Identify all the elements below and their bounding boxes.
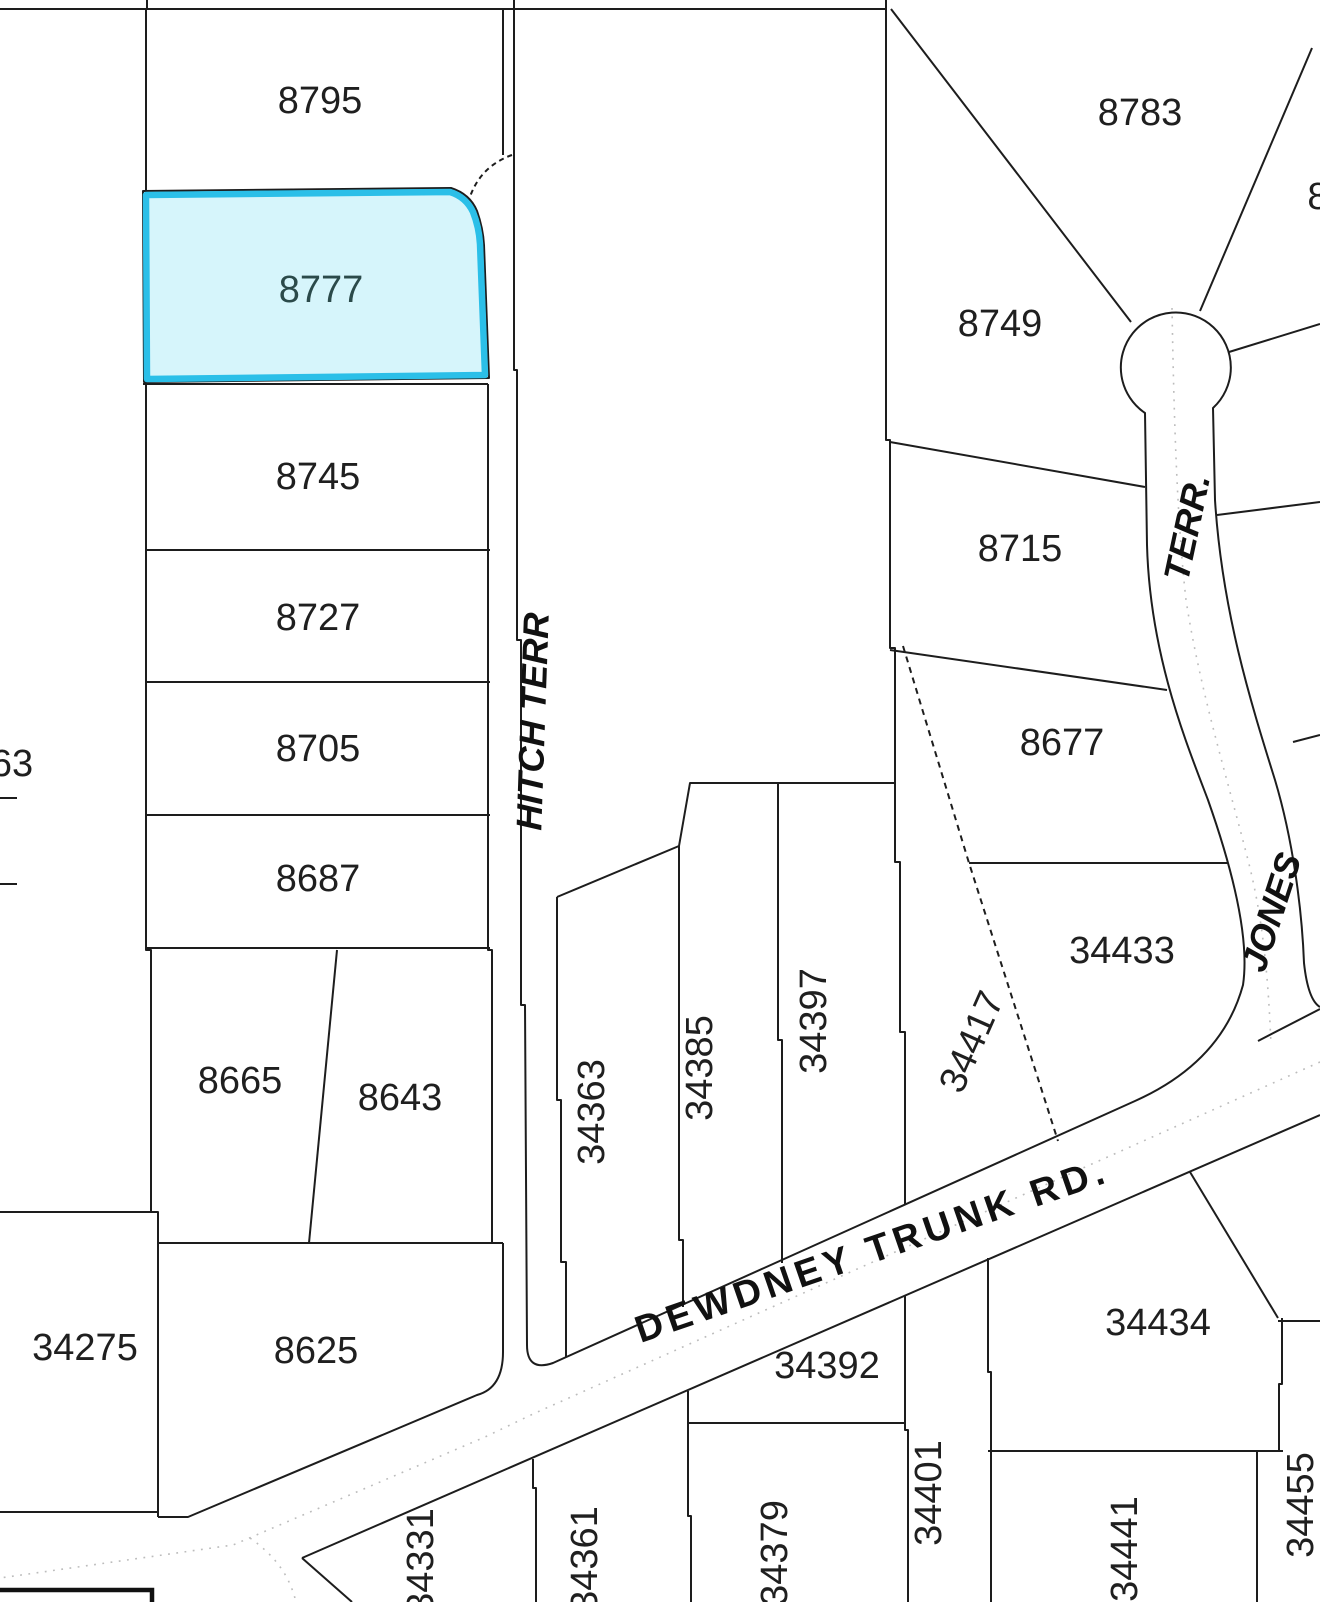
- lot-label-8783: 8783: [1098, 92, 1183, 134]
- parcel-boundary-line: [886, 0, 905, 1204]
- parcel-boundary-line: [1229, 324, 1320, 352]
- parcel-boundary-line: [1279, 1318, 1282, 1451]
- lot-label-8687: 8687: [276, 858, 361, 900]
- lot-label-8727: 8727: [276, 597, 361, 639]
- lot-label-63-partial: 63: [0, 743, 33, 785]
- parcel-boundary-line: [0, 1590, 152, 1602]
- lot-label-8643: 8643: [358, 1077, 443, 1119]
- lot-label-34275: 34275: [32, 1327, 138, 1369]
- parcel-map-canvas[interactable]: 8795 8777 8745 8727 8705 8687 8665 8643 …: [0, 0, 1320, 1602]
- lot-label-34455: 34455: [1280, 1452, 1320, 1558]
- parcel-boundary-line: [533, 1459, 536, 1602]
- lot-label-34379: 34379: [754, 1500, 796, 1602]
- road-edge-hitch-and-jones: [514, 0, 1320, 1365]
- parcel-boundary-line: [1200, 48, 1312, 311]
- parcel-boundary-line: [309, 950, 337, 1243]
- road-edge-dewdney-nw: [158, 1243, 503, 1517]
- parcel-boundary-line: [778, 783, 782, 1263]
- lot-label-8749: 8749: [958, 303, 1043, 345]
- street-label-terr: TERR.: [1155, 470, 1218, 584]
- lot-label-34434: 34434: [1105, 1302, 1211, 1344]
- road-edge-dewdney-nw: [1258, 1009, 1320, 1041]
- parcel-boundary-line: [988, 1258, 991, 1602]
- lot-label-8715: 8715: [978, 528, 1063, 570]
- lot-label-8795: 8795: [278, 80, 363, 122]
- parcel-boundary-line: [890, 650, 1167, 690]
- parcel-boundary-line: [557, 897, 566, 1357]
- road-edge-branch: [302, 1558, 352, 1602]
- parcel-boundary-line: [891, 9, 1131, 322]
- lot-label-34385: 34385: [679, 1015, 721, 1121]
- lot-label-34331: 34331: [400, 1508, 442, 1602]
- map-viewport: 8795 8777 8745 8727 8705 8687 8665 8643 …: [0, 0, 1320, 1602]
- lot-label-8705: 8705: [276, 728, 361, 770]
- parcel-boundary-line: [1190, 1172, 1278, 1318]
- lot-label-8625: 8625: [274, 1330, 359, 1372]
- street-label-jones: JONES: [1233, 848, 1310, 977]
- parcel-boundary-line: [890, 442, 1145, 487]
- lot-label-34401: 34401: [908, 1440, 950, 1546]
- lot-label-8745: 8745: [276, 456, 361, 498]
- lot-label-34433: 34433: [1069, 930, 1175, 972]
- lot-label-8665: 8665: [198, 1060, 283, 1102]
- lot-label-34441: 34441: [1104, 1496, 1146, 1602]
- parcel-boundary-line: [1217, 502, 1320, 515]
- street-label-hitch-terr: HITCH TERR: [508, 612, 557, 831]
- road-fillet-arc: [468, 155, 512, 203]
- lot-label-34417: 34417: [931, 985, 1012, 1099]
- lot-label-8677: 8677: [1020, 722, 1105, 764]
- road-centerline-branch: [250, 1538, 296, 1602]
- parcel-boundary-line: [488, 384, 492, 1243]
- lot-label-partial-8: 8: [1307, 176, 1320, 218]
- lot-label-34397: 34397: [793, 968, 835, 1074]
- lot-label-34392: 34392: [774, 1345, 880, 1387]
- street-label-dewdney-trunk-rd: DEWDNEY TRUNK RD.: [630, 1150, 1115, 1352]
- lot-label-34363: 34363: [571, 1059, 613, 1165]
- parcel-boundary-line: [1293, 735, 1320, 742]
- parcel-boundary-line: [557, 783, 895, 897]
- lot-label-34361: 34361: [564, 1506, 606, 1602]
- lot-label-8777-selected: 8777: [279, 269, 364, 311]
